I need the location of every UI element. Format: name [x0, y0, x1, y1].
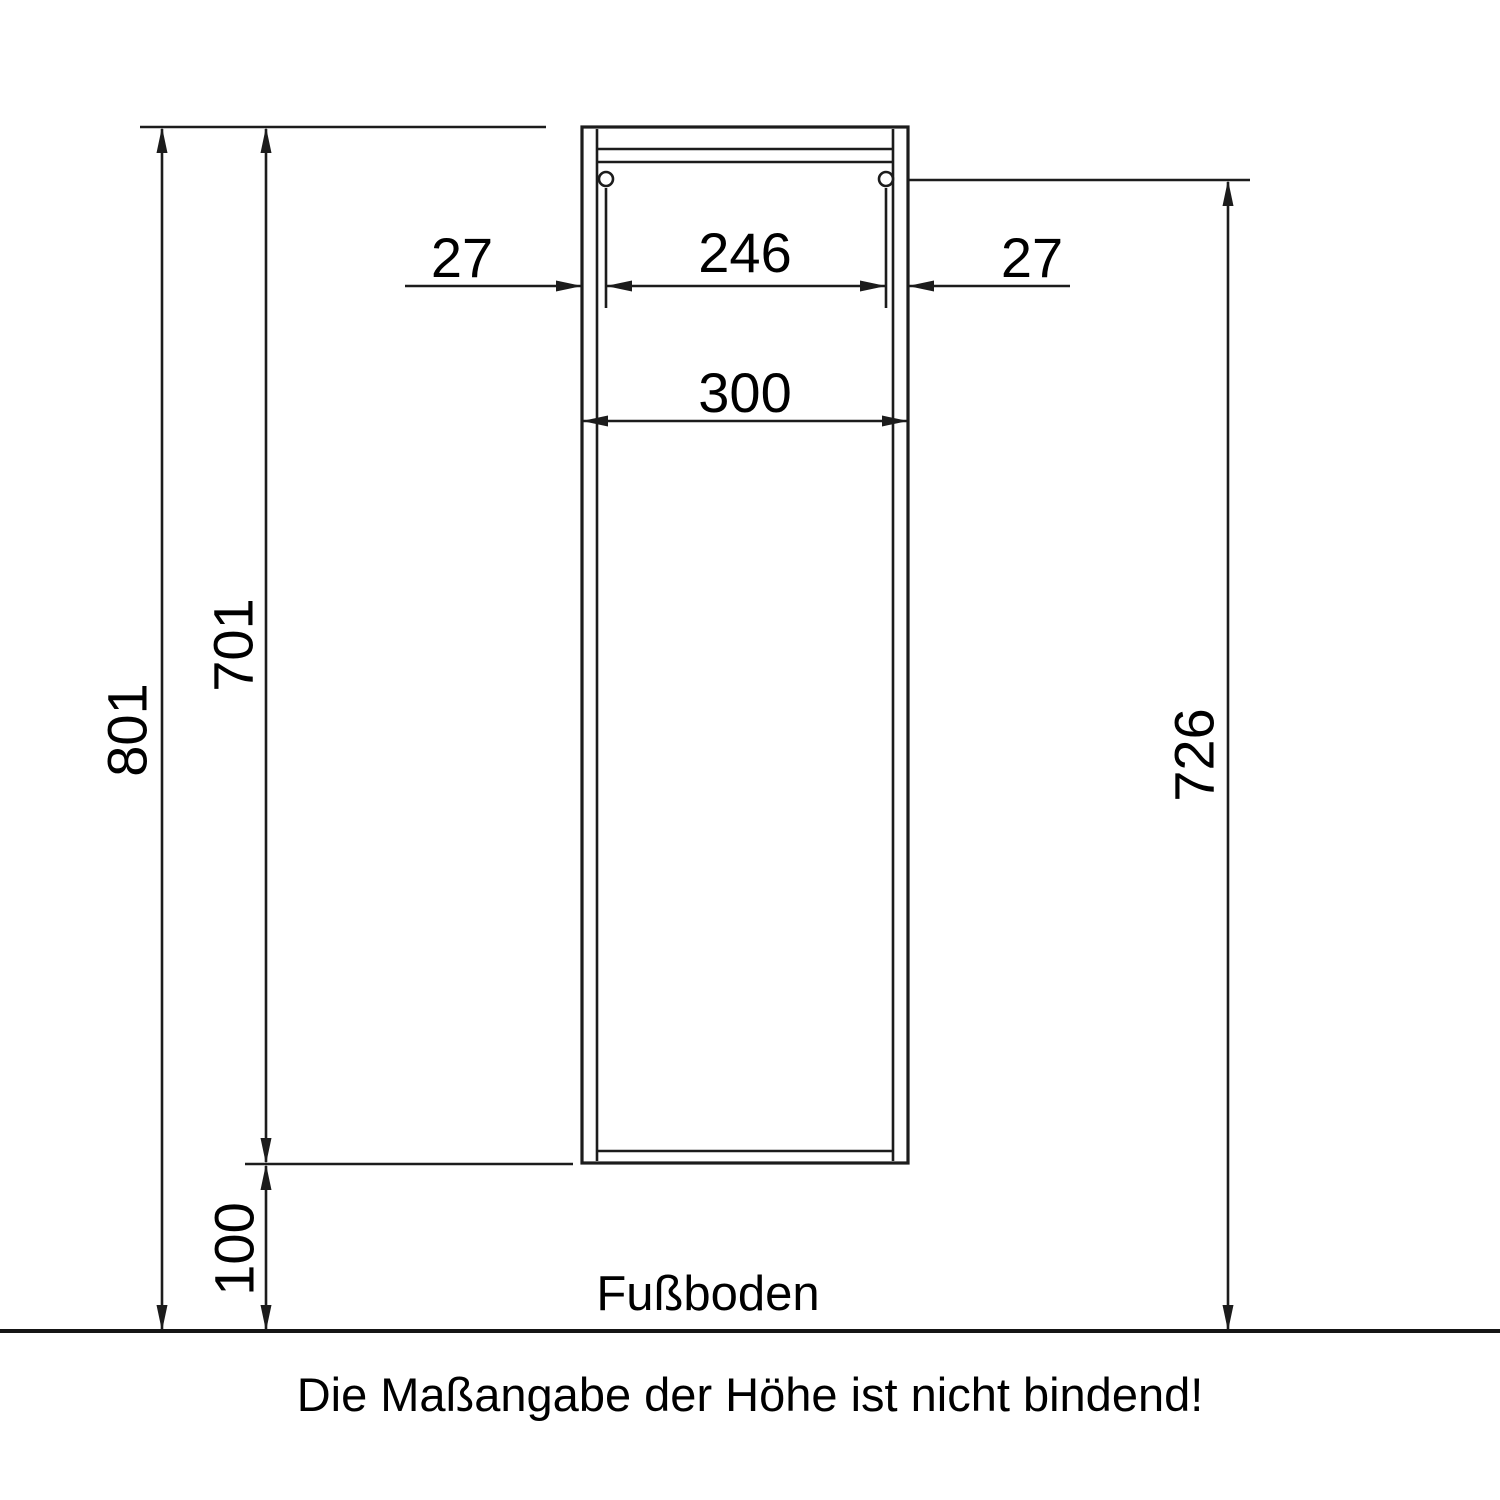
- dim-value-right-offset: 27: [1001, 226, 1063, 289]
- disclaimer-text: Die Maßangabe der Höhe ist nicht bindend…: [297, 1368, 1204, 1421]
- dimension-mount-height: 726: [1163, 180, 1234, 1331]
- arrow-right-icon: [882, 416, 908, 427]
- arrow-left-icon: [582, 416, 608, 427]
- dim-value-outer-width: 300: [698, 361, 791, 424]
- arrow-up-icon: [1223, 180, 1234, 206]
- arrow-down-icon: [157, 1305, 168, 1331]
- dim-value-left-offset: 27: [431, 226, 493, 289]
- dimension-overall-height: 801: [96, 127, 168, 1331]
- dimension-body-height: 701: [202, 127, 272, 1164]
- arrow-up-icon: [261, 127, 272, 153]
- arrow-down-icon: [261, 1138, 272, 1164]
- dimension-outer-width: 300: [582, 361, 908, 427]
- floor-label: Fußboden: [596, 1267, 819, 1321]
- extension-lines: [140, 127, 1250, 1164]
- hanger-hole-right: [879, 172, 893, 186]
- arrow-up-icon: [157, 127, 168, 153]
- cabinet-dimension-diagram: 27 246 27 300 801 701: [0, 0, 1500, 1500]
- arrow-right-icon: [860, 281, 886, 292]
- arrow-left-icon: [606, 281, 632, 292]
- dim-value-mount-height: 726: [1163, 708, 1226, 801]
- arrow-left-icon: [908, 281, 934, 292]
- arrow-down-icon: [1223, 1305, 1234, 1331]
- technical-drawing-page: 27 246 27 300 801 701: [0, 0, 1500, 1500]
- arrow-up-icon: [261, 1164, 272, 1190]
- dim-value-body-height: 701: [202, 598, 265, 691]
- hanger-hole-left: [599, 172, 613, 186]
- arrow-down-icon: [261, 1305, 272, 1331]
- dim-value-overall-height: 801: [96, 683, 159, 776]
- dim-value-inner-width: 246: [698, 221, 791, 284]
- dimension-top-chain: 27 246 27: [405, 221, 1070, 292]
- dimension-floor-clearance: 100: [203, 1164, 272, 1331]
- arrow-right-icon: [556, 281, 582, 292]
- dim-value-floor-clearance: 100: [203, 1202, 266, 1295]
